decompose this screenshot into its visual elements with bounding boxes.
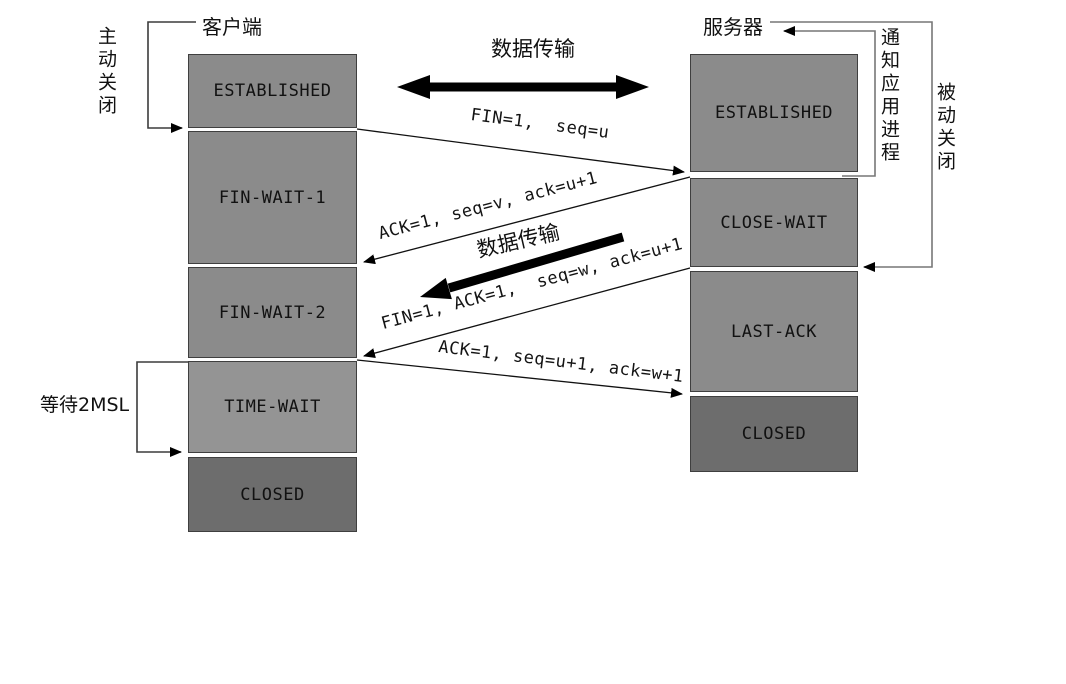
notify-application-note: 通知应用进程 <box>879 27 898 165</box>
wait-2msl-note: 等待2MSL <box>40 390 129 417</box>
client-state-established: ESTABLISHED <box>188 54 357 128</box>
arrowhead-left <box>397 75 430 99</box>
client-state-time-wait: TIME-WAIT <box>188 361 357 453</box>
server-title: 服务器 <box>703 11 763 40</box>
data-transfer-label-top: 数据传输 <box>491 33 575 63</box>
server-state-last-ack: LAST-ACK <box>690 271 858 392</box>
wait-2msl-bracket-arrow <box>137 362 188 452</box>
passive-close-note: 被动关闭 <box>935 82 954 174</box>
tcp-release-diagram: 客户端 服务器 主动关闭 通知应用进程 被动关闭 等待2MSL ESTABLIS… <box>0 0 1066 684</box>
msg-fin-line <box>357 129 684 172</box>
active-close-note: 主动关闭 <box>96 26 115 118</box>
server-state-closed: CLOSED <box>690 396 858 472</box>
client-state-fin-wait-1: FIN-WAIT-1 <box>188 131 357 264</box>
client-state-closed: CLOSED <box>188 457 357 532</box>
arrowhead-right <box>616 75 649 99</box>
server-state-established: ESTABLISHED <box>690 54 858 172</box>
data-transfer-arrow-top <box>397 75 649 99</box>
client-title: 客户端 <box>202 11 262 40</box>
server-state-close-wait: CLOSE-WAIT <box>690 178 858 267</box>
client-state-fin-wait-2: FIN-WAIT-2 <box>188 267 357 358</box>
diagram-lines-layer <box>0 0 1066 684</box>
